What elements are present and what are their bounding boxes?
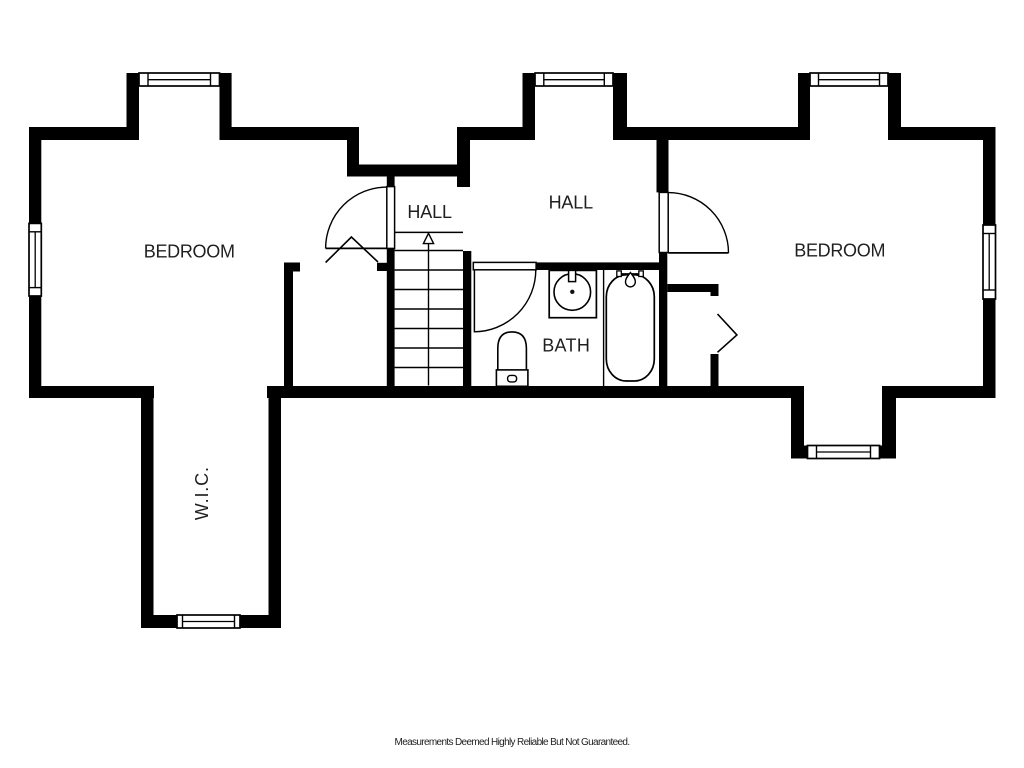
- svg-text:Measurements Deemed Highly Rel: Measurements Deemed Highly Reliable But …: [395, 737, 630, 748]
- svg-text:BATH: BATH: [542, 335, 590, 355]
- svg-text:W.I.C.: W.I.C.: [192, 466, 212, 520]
- svg-text:HALL: HALL: [407, 202, 452, 222]
- svg-text:HALL: HALL: [549, 192, 594, 212]
- svg-text:BEDROOM: BEDROOM: [144, 241, 235, 261]
- svg-text:BEDROOM: BEDROOM: [794, 240, 885, 260]
